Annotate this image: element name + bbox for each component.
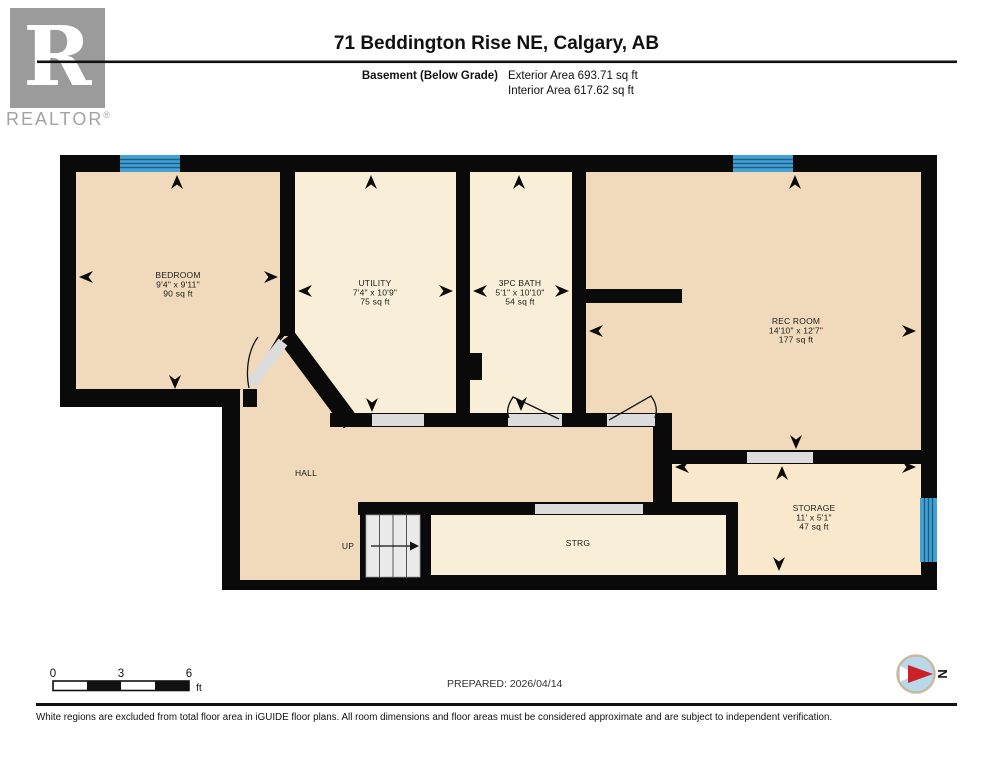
wall-bedroom-utility [280, 163, 295, 336]
hall-label: HALL [295, 468, 317, 478]
rec-area: 177 sq ft [779, 335, 814, 345]
wall-door-jamb [243, 389, 257, 407]
utility-door-opening [372, 414, 424, 426]
wall-stairs-right [420, 502, 431, 590]
scale-tick-0: 0 [50, 668, 56, 680]
wall-bath-stub [456, 353, 482, 380]
wall-utility-bath [456, 163, 470, 427]
scale-bar-segment [87, 681, 121, 691]
utility-label: UTILITY [358, 278, 391, 288]
footer-rule [36, 703, 957, 706]
scale-unit: ft [196, 682, 202, 694]
up-label: UP [342, 541, 354, 551]
floorplan-drawing: BEDROOM 9'4" x 9'11" 90 sq ft UTILITY 7'… [0, 0, 993, 768]
utility-area: 75 sq ft [360, 297, 390, 307]
floorplan-page: R REALTOR® 71 Beddington Rise NE, Calgar… [0, 0, 993, 768]
bedroom-label: BEDROOM [155, 270, 200, 280]
bath-label: 3PC BATH [499, 278, 542, 288]
bath-door-opening [508, 414, 562, 426]
rec-label: REC ROOM [772, 316, 820, 326]
wall-rec-stub [578, 289, 682, 303]
staircase [366, 515, 420, 577]
scale-tick-6: 6 [186, 668, 192, 680]
bath-area: 54 sq ft [505, 297, 535, 307]
storage-door-opening [747, 452, 813, 463]
compass: N [898, 656, 951, 693]
bedroom-area: 90 sq ft [163, 289, 193, 299]
rec-door-opening [607, 414, 655, 426]
strg-door-opening [535, 504, 643, 514]
room-rec-floor [586, 172, 921, 451]
scale-bar-segment [155, 681, 189, 691]
scale-bar: 0 3 6 ft [50, 668, 202, 694]
header-rule [37, 61, 957, 64]
compass-north-label: N [935, 669, 950, 678]
scale-tick-3: 3 [118, 668, 124, 680]
wall-strg-storage [726, 509, 738, 590]
storage-area: 47 sq ft [799, 522, 829, 532]
storage-label: STORAGE [793, 503, 836, 513]
strg-label: STRG [566, 538, 590, 548]
